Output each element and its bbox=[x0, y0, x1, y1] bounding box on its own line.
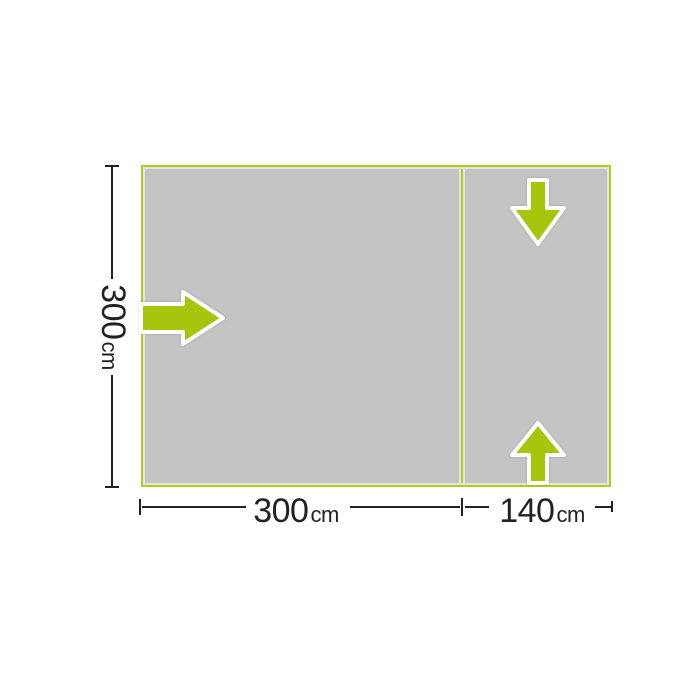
width-dimension-tick-right bbox=[611, 501, 613, 512]
height-dimension-line-upper bbox=[111, 166, 113, 279]
height-unit: cm bbox=[98, 341, 120, 369]
annex-width-line-right bbox=[595, 506, 611, 508]
height-dimension-line-lower bbox=[111, 375, 113, 487]
width-dimension-tick-middle bbox=[461, 498, 463, 516]
height-value: 300 bbox=[96, 284, 130, 339]
arrow-up-icon bbox=[510, 421, 566, 485]
height-dimension-label: 300 cm bbox=[96, 284, 130, 370]
annex-width-value: 140 bbox=[499, 494, 554, 528]
annex-width-unit: cm bbox=[556, 504, 584, 526]
main-width-line-left bbox=[142, 506, 246, 508]
annex-width-label: 140 cm bbox=[499, 494, 585, 528]
annex-width-line-left bbox=[465, 506, 489, 508]
height-dimension-cap-bottom bbox=[105, 486, 119, 488]
room-divider-line bbox=[461, 169, 463, 483]
arrow-right-icon bbox=[139, 289, 225, 347]
main-width-label: 300 cm bbox=[253, 494, 339, 528]
main-width-value: 300 bbox=[253, 494, 308, 528]
main-width-line-right bbox=[350, 506, 460, 508]
width-dimension-tick-left bbox=[139, 499, 141, 515]
floorplan-diagram: 300 cm 300 cm 140 cm bbox=[0, 0, 700, 700]
arrow-down-icon bbox=[510, 178, 566, 246]
main-width-unit: cm bbox=[310, 504, 338, 526]
